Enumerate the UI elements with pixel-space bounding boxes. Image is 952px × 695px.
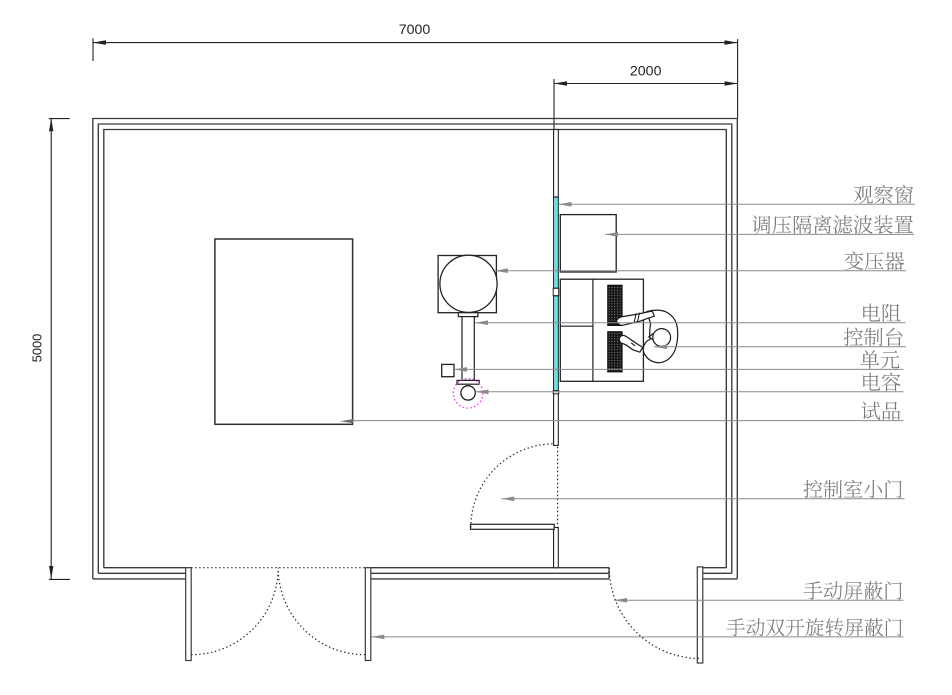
svg-text:7000: 7000 (399, 22, 431, 38)
svg-text:5000: 5000 (29, 334, 44, 362)
svg-text:2000: 2000 (630, 64, 662, 80)
